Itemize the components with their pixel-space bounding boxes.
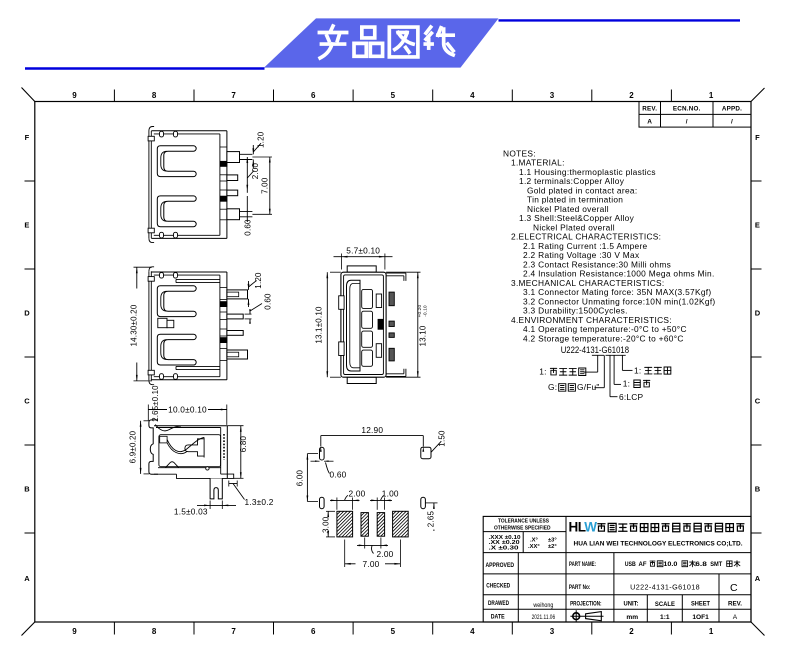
svg-text:HUA LIAN WEI TECHNOLOGY EL: HUA LIAN WEI TECHNOLOGY ELECTRONICS CO;L… (574, 540, 743, 547)
svg-text:2.00: 2.00 (349, 489, 366, 499)
svg-text:1: 1 (709, 627, 714, 636)
svg-text:OTHERWISE SPECIFIED: OTHERWISE SPECIFIED (494, 526, 551, 532)
svg-text:4: 4 (470, 627, 475, 636)
svg-text:2.00: 2.00 (377, 549, 394, 559)
svg-text:6.8: 6.8 (695, 561, 707, 568)
svg-text:USB: USB (625, 561, 636, 568)
svg-text:1.20: 1.20 (257, 131, 266, 148)
svg-text:12.90: 12.90 (361, 425, 383, 435)
svg-text:.X ±0.30: .X ±0.30 (489, 545, 519, 551)
svg-text:AF: AF (639, 561, 647, 568)
svg-text:APPROVED: APPROVED (486, 562, 515, 569)
svg-text:PROJECTION:: PROJECTION: (570, 602, 602, 608)
svg-text:C: C (730, 582, 738, 594)
svg-text:mm: mm (626, 614, 638, 621)
svg-text:F: F (755, 133, 760, 142)
svg-text:10.0±0.10: 10.0±0.10 (168, 405, 207, 415)
svg-text:1.50: 1.50 (437, 430, 446, 447)
svg-text:/: / (731, 119, 733, 126)
svg-text:.XX°: .XX° (528, 544, 540, 550)
svg-text:6: 6 (311, 627, 316, 636)
svg-text:1:1: 1:1 (660, 614, 670, 621)
svg-text:E: E (24, 221, 29, 230)
svg-text:8: 8 (152, 627, 157, 636)
svg-text:1OF1: 1OF1 (692, 614, 709, 621)
svg-text:U222-4131-G61018: U222-4131-G61018 (630, 582, 700, 591)
svg-text:3: 3 (550, 91, 555, 100)
svg-text:7: 7 (231, 627, 236, 636)
svg-text:14.30±0.20: 14.30±0.20 (130, 304, 139, 346)
svg-text:TOLERANCE UNLESS: TOLERANCE UNLESS (498, 519, 549, 525)
svg-text:8: 8 (152, 91, 157, 100)
svg-text:SHEET: SHEET (691, 601, 710, 608)
svg-text:-0.10: -0.10 (422, 305, 427, 317)
svg-text:6.80: 6.80 (239, 435, 248, 452)
svg-text:CHECKED: CHECKED (486, 583, 510, 590)
svg-text:2.00: 2.00 (251, 162, 260, 179)
svg-text:G/Fu": G/Fu" (577, 382, 600, 392)
svg-text:3.00: 3.00 (322, 516, 331, 533)
svg-text:U222-4131-G61018: U222-4131-G61018 (561, 345, 629, 355)
svg-text:REV.: REV. (642, 106, 657, 113)
svg-text:4.2 Storage temperature:-20°: 4.2 Storage temperature:-20°C to +60°C (523, 333, 684, 343)
svg-text:D: D (24, 309, 30, 318)
svg-text:DATE: DATE (491, 614, 505, 621)
svg-text:4: 4 (470, 91, 475, 100)
svg-text:A: A (733, 614, 738, 621)
svg-text:PART No:: PART No: (569, 585, 591, 591)
svg-text:9: 9 (72, 627, 77, 636)
svg-text:.X°: .X° (530, 537, 538, 543)
svg-text:weihong: weihong (533, 602, 554, 609)
svg-text:3: 3 (550, 627, 555, 636)
svg-text:A: A (24, 574, 30, 583)
svg-text:ECN.NO.: ECN.NO. (673, 106, 701, 113)
svg-text:A: A (755, 574, 761, 583)
svg-text:5.7±0.10: 5.7±0.10 (346, 246, 380, 256)
svg-text:6:LCP: 6:LCP (619, 392, 643, 402)
svg-text:DRAWED: DRAWED (488, 600, 509, 607)
svg-text:±2°: ±2° (548, 544, 557, 550)
svg-text:1.20: 1.20 (254, 272, 263, 289)
svg-text:5: 5 (391, 91, 396, 100)
svg-text:6: 6 (311, 91, 316, 100)
svg-text:0.60: 0.60 (330, 469, 347, 479)
svg-text:2.65±0.10: 2.65±0.10 (151, 385, 160, 422)
svg-text:1:: 1: (623, 379, 630, 389)
svg-text:0.60: 0.60 (264, 293, 273, 310)
svg-text:0.60: 0.60 (243, 219, 252, 236)
svg-text:B: B (755, 485, 761, 494)
svg-text:D: D (755, 309, 761, 318)
svg-text:1.00: 1.00 (382, 489, 399, 499)
svg-text:1:: 1: (539, 367, 546, 377)
svg-text:SMT: SMT (710, 561, 723, 568)
svg-text:2.65: 2.65 (427, 510, 436, 527)
svg-text:W: W (584, 520, 597, 535)
svg-text:2021.11.06: 2021.11.06 (532, 614, 556, 621)
svg-text:7.00: 7.00 (260, 177, 269, 194)
svg-text:A: A (647, 119, 652, 126)
svg-text:10.0: 10.0 (663, 561, 677, 568)
svg-text:1.3±0.2: 1.3±0.2 (245, 497, 274, 507)
svg-text:REV.: REV. (728, 601, 742, 608)
svg-text:2: 2 (629, 91, 634, 100)
svg-text:E: E (755, 221, 760, 230)
svg-text:1:: 1: (634, 365, 641, 375)
svg-text:APPD.: APPD. (722, 106, 742, 113)
svg-text:B: B (24, 485, 30, 494)
svg-text:1.5±0.03: 1.5±0.03 (174, 507, 208, 517)
svg-text:7: 7 (231, 91, 236, 100)
svg-text:F: F (25, 133, 30, 142)
svg-text:SCALE: SCALE (655, 601, 676, 608)
svg-text:±3°: ±3° (548, 537, 557, 543)
svg-text:2: 2 (629, 627, 634, 636)
svg-text:C: C (24, 397, 30, 406)
svg-text:G:: G: (548, 382, 557, 392)
svg-text:PART NAME:: PART NAME: (569, 562, 596, 568)
svg-text:13.10: 13.10 (419, 325, 428, 346)
svg-text:6.00: 6.00 (296, 469, 305, 486)
svg-text:9: 9 (72, 91, 77, 100)
svg-text:5: 5 (391, 627, 396, 636)
svg-text:HL: HL (569, 520, 586, 535)
svg-text:1: 1 (709, 91, 714, 100)
svg-text:13.1±0.10: 13.1±0.10 (314, 306, 323, 344)
svg-text:7.00: 7.00 (363, 559, 380, 569)
svg-text:6.9±0.20: 6.9±0.20 (128, 430, 137, 463)
svg-text:UNIT:: UNIT: (624, 601, 639, 608)
svg-text:C: C (755, 397, 761, 406)
svg-text:/: / (686, 119, 688, 126)
svg-text:+0.20: +0.20 (417, 304, 422, 317)
